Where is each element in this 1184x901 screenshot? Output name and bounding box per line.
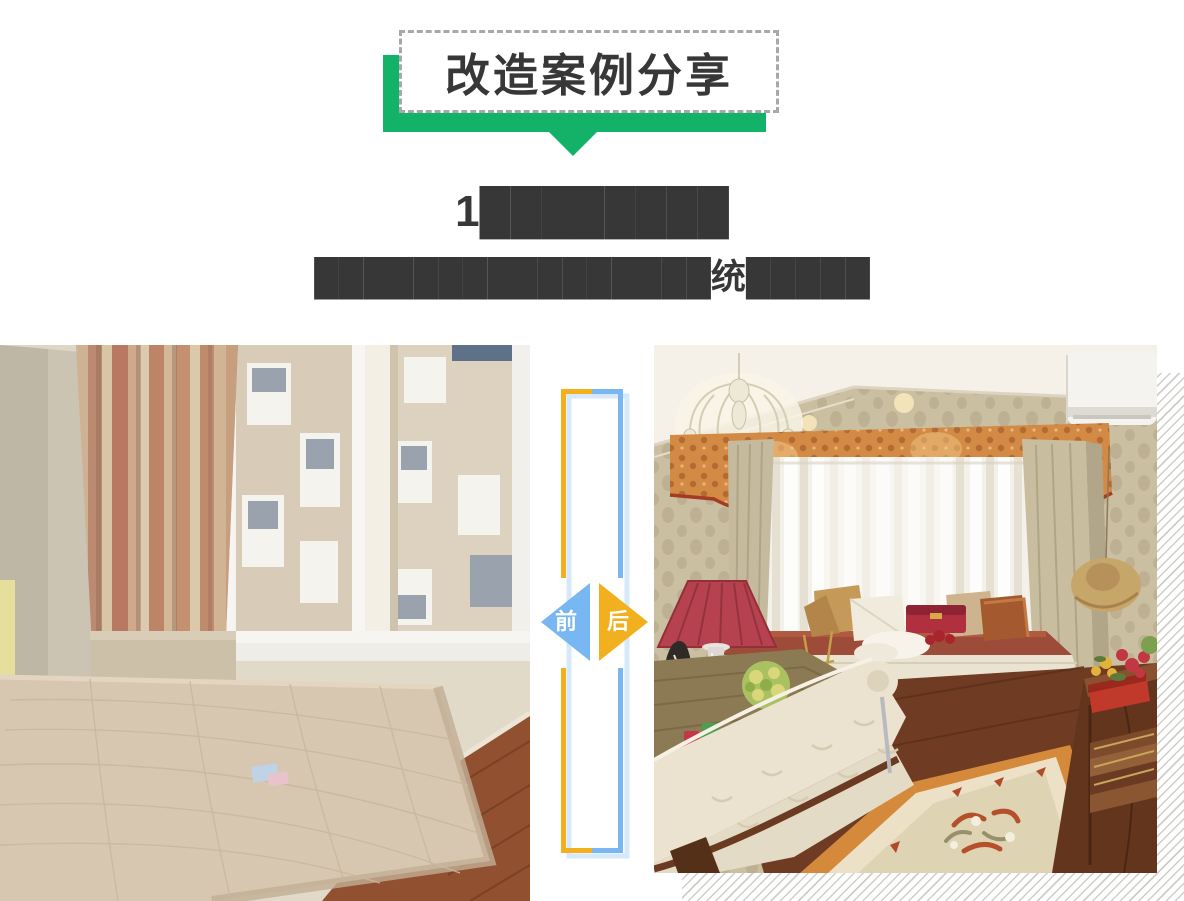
before-photo	[0, 345, 530, 901]
case-subtitle-redacted: ████████████████统█████	[0, 254, 1184, 302]
window	[222, 345, 530, 661]
before-label: 前	[549, 608, 583, 636]
after-photo	[654, 345, 1157, 873]
banner-title: 改造案例分享	[445, 39, 733, 104]
after-label: 后	[601, 608, 635, 636]
bare-mattress	[0, 677, 490, 901]
banner-title-box: 改造案例分享	[399, 30, 779, 113]
case-title-redacted: 1████████	[0, 184, 1184, 240]
air-conditioner	[1067, 351, 1157, 425]
